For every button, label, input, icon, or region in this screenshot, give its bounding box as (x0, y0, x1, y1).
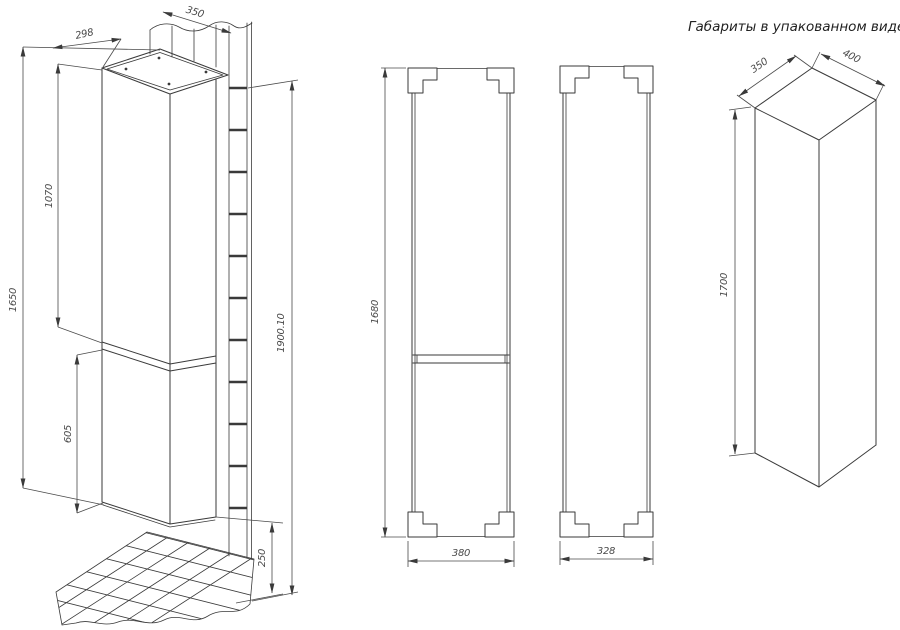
wall-tile-joints (229, 88, 247, 508)
front-door-divider (413, 355, 509, 363)
front-dimensions: 1680 380 (370, 68, 514, 567)
dim-total-height: 1900.10 (276, 313, 287, 352)
dim-package-depth: 350 (749, 56, 770, 75)
dim-cabinet-height: 1650 (8, 288, 19, 312)
screw-hole (168, 83, 171, 86)
bracket-bottom-right (485, 512, 514, 537)
dim-package-width: 400 (841, 48, 862, 66)
front-view: 1680 380 (370, 68, 514, 567)
cabinet-top-face (102, 49, 228, 94)
screw-hole (205, 71, 208, 74)
box-top-face (755, 68, 876, 140)
cabinet-bottom-edge (102, 502, 216, 524)
cabinet-technical-drawing: 298 350 1650 1070 605 250 1900.10 (0, 0, 900, 630)
side-view: 328 (560, 66, 653, 565)
wall-tiles (150, 22, 252, 559)
floor-tiles (17, 506, 270, 630)
dim-lower-door: 605 (63, 425, 74, 443)
dim-side-depth: 328 (597, 546, 615, 557)
dim-wall-width: 350 (184, 5, 205, 21)
technical-drawing-page: 298 350 1650 1070 605 250 1900.10 (0, 0, 900, 630)
iso-dimensions: 298 350 1650 1070 605 250 1900.10 (8, 5, 298, 603)
package-dimensions: 350 400 1700 (719, 48, 885, 456)
bracket-bottom-right (624, 512, 653, 537)
cabinet-iso (102, 49, 228, 527)
dim-front-height: 1680 (370, 300, 381, 324)
dim-front-width: 380 (452, 548, 470, 559)
dim-depth: 298 (74, 27, 94, 42)
screw-hole (158, 57, 161, 60)
bracket-top-left (560, 66, 589, 93)
bracket-top-right (624, 66, 653, 93)
package-box (755, 68, 876, 487)
dim-upper-door: 1070 (44, 184, 55, 208)
bracket-bottom-left (408, 512, 437, 537)
bracket-bottom-left (560, 512, 589, 537)
side-dimensions: 328 (560, 541, 653, 565)
bracket-top-right (487, 68, 514, 93)
dim-floor-clearance: 250 (257, 549, 268, 567)
bracket-top-left (408, 68, 437, 93)
door-gap-top (102, 342, 216, 364)
iso-view: 298 350 1650 1070 605 250 1900.10 (8, 5, 298, 630)
dim-package-height: 1700 (719, 273, 730, 297)
package-view: Габариты в упакованном виде 350 400 1700 (688, 19, 900, 487)
package-title: Габариты в упакованном виде (688, 19, 900, 35)
screw-hole (125, 68, 128, 71)
